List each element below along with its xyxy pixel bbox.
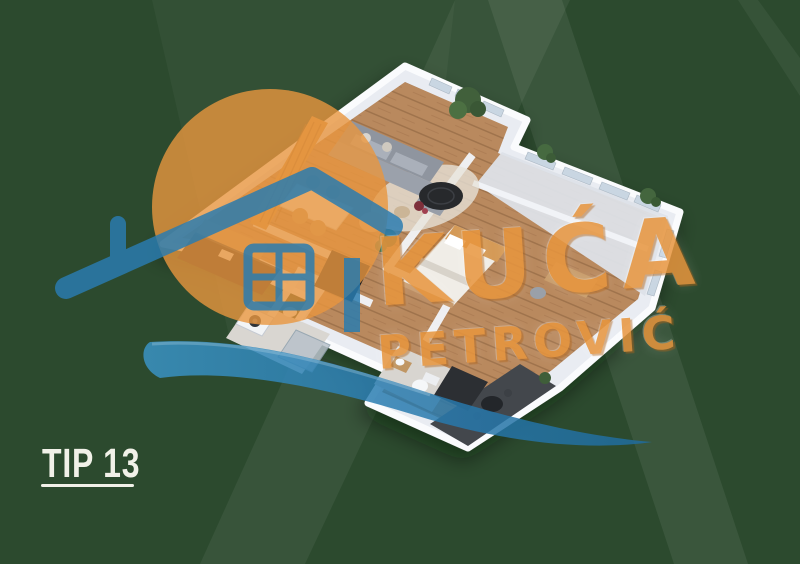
flyer-canvas: KUĆA PETROVIĆ TIP 13 bbox=[0, 0, 800, 564]
brand-name-kuca: KUĆA bbox=[372, 205, 707, 322]
terrace-stool bbox=[504, 389, 512, 397]
title-underline bbox=[41, 484, 134, 487]
apartment-type-label: TIP 13 bbox=[42, 440, 140, 487]
stripe-corner bbox=[738, 0, 800, 96]
